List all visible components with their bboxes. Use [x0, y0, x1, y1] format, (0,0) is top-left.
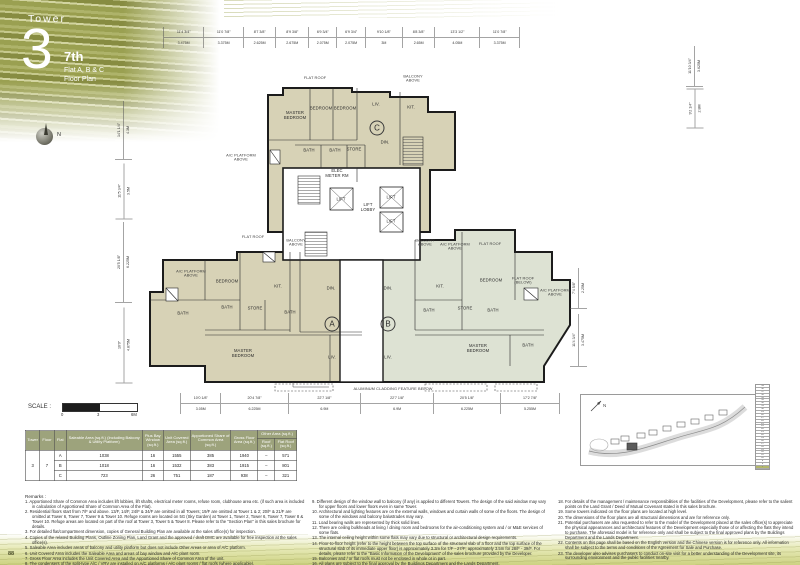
cell-common: 385	[190, 450, 231, 460]
cell-gross: 938	[231, 470, 258, 480]
flat-letter-badge: B	[381, 317, 396, 332]
room-label: LIFT	[336, 198, 345, 203]
dimension-segment: 22'7 1/8"6.9M	[360, 393, 433, 414]
cell-saleable: 723	[66, 470, 142, 480]
room-label: BATH	[522, 344, 533, 349]
flat-letter-badge: C	[370, 121, 385, 136]
cell-flat_roof: 801	[275, 460, 297, 470]
dimension-metric: 2.075M	[337, 38, 364, 48]
room-label: LIFT	[386, 196, 395, 201]
dimension-metric: 2.625M	[244, 38, 275, 48]
cell-floor: 7	[40, 450, 54, 480]
dimension-imperial: 8'8 3/8"	[403, 27, 435, 38]
room-label: BEDROOM	[480, 279, 502, 284]
cell-saleable: 1018	[66, 460, 142, 470]
room-label: FLAT ROOF (BELOW)	[512, 277, 534, 286]
remark-item: 23. The developer also advises purchaser…	[558, 552, 796, 562]
col-header-other-area: Other Area (sq.ft.)	[258, 431, 297, 439]
dimension-segment: 11'10 3/4"3.625M	[686, 46, 703, 87]
dimension-imperial: 11'10 3/4"	[686, 46, 695, 86]
dimension-imperial: 11'0 7/8"	[480, 27, 519, 38]
room-label: LIFT LOBBY	[361, 203, 375, 213]
room-label: BATH	[221, 306, 232, 311]
plan-type-label: Floor Plan	[64, 76, 96, 83]
dimension-imperial: 16'0"	[115, 308, 124, 383]
dimension-segment: 8'9 3/8"2.675M	[275, 27, 308, 48]
room-label: BATH	[284, 311, 295, 316]
room-label: LIV.	[372, 103, 379, 108]
room-label: BATH	[303, 149, 314, 154]
remark-item: 21. Potential purchasers are also reques…	[558, 521, 796, 541]
floor-strip-row: 7	[756, 466, 769, 469]
scale-bar: SCALE : 0 3 6M	[28, 402, 148, 420]
room-label: A/C PLATFORM ABOVE	[440, 243, 470, 252]
room-label: KIT.	[407, 106, 415, 111]
room-label: FLAT ROOF	[242, 235, 264, 239]
dimension-imperial: 17'2 7/8"	[501, 393, 559, 404]
dimension-metric: 2.65M	[403, 38, 435, 48]
dimension-segment: 13'3 1/2"4.05M	[434, 27, 479, 48]
flat-letter-badge: A	[325, 317, 340, 332]
cell-roof: –	[258, 470, 275, 480]
cell-bay: 16	[142, 450, 163, 460]
flat-area-table: Tower Floor Flat Saleable Area (sq.ft.) …	[25, 430, 297, 481]
room-label: DIN.	[327, 287, 336, 292]
dimension-metric: 4.05M	[435, 38, 479, 48]
cell-roof: –	[258, 460, 275, 470]
cell-bay: 16	[142, 460, 163, 470]
key-plan-tower-highlight	[627, 443, 637, 450]
room-label: LIFT	[386, 220, 395, 225]
room-label: ELEC METER RM	[325, 169, 348, 179]
dimension-imperial: 20'5 1/8"	[115, 222, 124, 302]
room-label: FLAT ROOF	[479, 242, 501, 246]
col-header-roof: Roof (sq.ft.)	[258, 438, 275, 450]
room-label: KIT.	[274, 285, 282, 290]
dimension-metric: 6.225M	[221, 404, 287, 414]
scale-tick-6: 6M	[131, 412, 137, 417]
col-header-floor: Floor	[40, 431, 54, 451]
dimension-metric: 2.8M	[696, 90, 704, 128]
cell-flat: B	[54, 460, 66, 470]
room-label: MASTER BEDROOM	[232, 349, 254, 359]
compass-needle-icon	[44, 123, 48, 135]
table-row: B10181615323831915–801	[26, 460, 297, 470]
dimension-metric: 5.255M	[501, 404, 559, 414]
remark-item: 10. Architectural and lighting features …	[312, 510, 552, 520]
room-label: LIV.	[384, 356, 391, 361]
scale-tick-3: 3	[97, 412, 99, 417]
cell-gross: 1915	[231, 460, 258, 470]
flat-area-table-body: 37A10381615553851940–571B101816153238319…	[26, 450, 297, 480]
room-label: FLAT ROOF	[304, 76, 326, 80]
remarks-column-3: 18. For details of the management / main…	[558, 500, 796, 562]
dimension-imperial: 11'0 7/8"	[204, 27, 243, 38]
room-label: BEDROOM	[334, 107, 356, 112]
north-label: N	[57, 132, 61, 138]
scale-tick-0: 0	[61, 412, 63, 417]
dimension-imperial: 8'9 3/8"	[276, 27, 308, 38]
cell-unit: 1532	[164, 460, 191, 470]
dimension-metric: 2.075M	[309, 38, 336, 48]
dimension-segment: 11'4 3/4"3.475M	[163, 27, 203, 48]
room-label: A/C PLATFORM ABOVE	[540, 289, 570, 298]
dimension-segment: 11'0 7/8"3.375M	[479, 27, 520, 48]
cell-gross: 1940	[231, 450, 258, 460]
dimension-segment: 17'2 7/8"5.255M	[500, 393, 560, 414]
col-header-saleable: Saleable Area (sq.ft.) (Including Balcon…	[66, 431, 142, 451]
key-plan-north-label: N	[603, 403, 606, 408]
dimension-imperial: 20'5 1/8"	[434, 393, 500, 404]
room-label: BALCONY ABOVE	[286, 239, 305, 248]
col-header-flat-roof: Flat Roof (sq.ft.)	[275, 438, 297, 450]
dimension-imperial: 6'9 3/4"	[309, 27, 336, 38]
remarks-column-2: 9. Different design of the window wall t…	[312, 500, 552, 565]
room-label: BATH	[487, 309, 498, 314]
scale-label: SCALE :	[28, 404, 51, 410]
dimension-metric: 2.675M	[276, 38, 308, 48]
floor-label: 7th	[64, 49, 84, 64]
room-label: KIT.	[436, 285, 444, 290]
flats-label: Flat A, B & C	[64, 67, 104, 74]
dimension-metric: 3.475M	[164, 38, 203, 48]
dimension-segment: 9'2 1/4"2.8M	[687, 89, 704, 129]
room-label: MASTER BEDROOM	[467, 344, 489, 354]
room-label: BATH	[423, 309, 434, 314]
dimension-segment: 22'7 1/8"6.9M	[288, 393, 361, 414]
room-label: BATH	[329, 149, 340, 154]
room-label: STORE	[347, 148, 362, 153]
cell-unit: 751	[164, 470, 191, 480]
table-row: C72326751187938–321	[26, 470, 297, 480]
bottom-dimension-strip: 10'0 1/8"3.05M20'4 7/8"6.225M22'7 1/8"6.…	[180, 393, 560, 414]
dimension-imperial: 20'4 7/8"	[221, 393, 287, 404]
dimension-imperial: 6'9 3/4"	[337, 27, 364, 38]
col-header-bay-window: Plus Bay Window (sq.ft.)	[142, 431, 163, 451]
cell-saleable: 1038	[66, 450, 142, 460]
room-label: BEDROOM	[310, 107, 332, 112]
key-plan-drawing: N	[581, 395, 753, 463]
col-header-unit-covered: Unit Covered Area (sq.ft.)	[164, 431, 191, 451]
col-header-common-area: Apportioned Share of Common Area (sq.ft.…	[190, 431, 231, 451]
page-number: 88	[8, 551, 14, 557]
dimension-metric: 3M	[366, 38, 402, 48]
room-label: MASTER BEDROOM	[284, 111, 306, 121]
dimension-segment: 8'8 3/8"2.65M	[402, 27, 435, 48]
dimension-imperial: 8'7 3/8"	[244, 27, 275, 38]
dimension-metric: 6.9M	[289, 404, 361, 414]
cell-common: 383	[190, 460, 231, 470]
dimension-metric: 3.625M	[695, 46, 703, 86]
dimension-imperial: 22'7 1/8"	[289, 393, 361, 404]
north-compass: N	[34, 124, 60, 150]
room-label: BEDROOM	[216, 280, 238, 285]
dimension-imperial: 10'0 1/8"	[181, 393, 220, 404]
room-label: STORE	[458, 307, 473, 312]
dimension-segment: 10'0 1/8"3.05M	[180, 393, 220, 414]
dimension-imperial: 11'4 3/4"	[164, 27, 203, 38]
room-label: LIV.	[328, 356, 335, 361]
room-label: DIN.	[381, 141, 390, 146]
dimension-metric: 3.05M	[181, 404, 220, 414]
key-plan: N	[580, 394, 756, 466]
room-label: A/C PLATFORM ABOVE	[176, 270, 206, 279]
floor-index-strip: 3938373635333231302928272625232221201918…	[755, 384, 770, 470]
dimension-segment: 8'7 3/8"2.625M	[243, 27, 275, 48]
cell-flat_roof: 571	[275, 450, 297, 460]
col-header-tower: Tower	[26, 431, 40, 451]
remark-item: 14. Floor-to-floor height (refer to the …	[312, 542, 552, 557]
room-label: DIN.	[384, 287, 393, 292]
tower-number: 3	[21, 21, 53, 78]
key-plan-north-icon: N	[591, 401, 606, 411]
cell-bay: 26	[142, 470, 163, 480]
room-label: STORE	[248, 307, 263, 312]
room-label: BATH	[177, 312, 188, 317]
cell-common: 187	[190, 470, 231, 480]
dimension-segment: 6'9 3/4"2.075M	[308, 27, 336, 48]
floor-plan-labels: ALUMINUM CLADDING FEATURE BELOW FLAT ROO…	[125, 48, 585, 404]
floor-plan: ALUMINUM CLADDING FEATURE BELOW FLAT ROO…	[125, 48, 585, 404]
room-label: A/C PLATFORM ABOVE	[226, 154, 256, 163]
dimension-imperial: 22'7 1/8"	[361, 393, 433, 404]
cell-flat_roof: 321	[275, 470, 297, 480]
table-row: 37A10381615553851940–571	[26, 450, 297, 460]
dimension-segment: 11'0 7/8"3.375M	[203, 27, 243, 48]
cell-flat: A	[54, 450, 66, 460]
cell-unit: 1555	[164, 450, 191, 460]
dimension-segment: 20'4 7/8"6.225M	[220, 393, 287, 414]
dimension-metric: 3.375M	[204, 38, 243, 48]
dimension-imperial: 13'3 1/2"	[435, 27, 479, 38]
cell-tower: 3	[26, 450, 40, 480]
cell-roof: –	[258, 450, 275, 460]
brochure-page: Tower 3 7th Flat A, B & C Floor Plan N 1…	[0, 0, 800, 565]
remarks-column-1: 1. Apportioned Share of Common Area incl…	[25, 500, 305, 565]
dimension-metric: 6.225M	[434, 404, 500, 414]
room-label: BALCONY ABOVE	[403, 75, 422, 84]
dimension-imperial: 11'5 3/4"	[115, 164, 124, 219]
top-dimension-strip: 11'4 3/4"3.475M11'0 7/8"3.375M8'7 3/8"2.…	[163, 27, 520, 48]
scale-segments	[62, 403, 138, 412]
col-header-flat: Flat	[54, 431, 66, 451]
dimension-segment: 6'9 3/4"2.075M	[336, 27, 364, 48]
col-header-gross-floor: Gross Floor Area (sq.ft.)	[231, 431, 258, 451]
remark-item: 22. Contents on this page shall be based…	[558, 541, 796, 551]
dimension-segment: 20'5 1/8"6.225M	[433, 393, 500, 414]
cell-flat: C	[54, 470, 66, 480]
room-label: BALCONY ABOVE	[415, 239, 434, 248]
dimension-imperial: 9'2 1/4"	[687, 90, 696, 128]
remark-item: 2. Residential floors start from 7/F and…	[25, 510, 305, 530]
cladding-note: ALUMINUM CLADDING FEATURE BELOW	[353, 387, 432, 391]
dimension-metric: 6.9M	[361, 404, 433, 414]
dimension-imperial: 9'10 1/8"	[366, 27, 402, 38]
dimension-metric: 3.375M	[480, 38, 519, 48]
dimension-segment: 9'10 1/8"3M	[365, 27, 402, 48]
